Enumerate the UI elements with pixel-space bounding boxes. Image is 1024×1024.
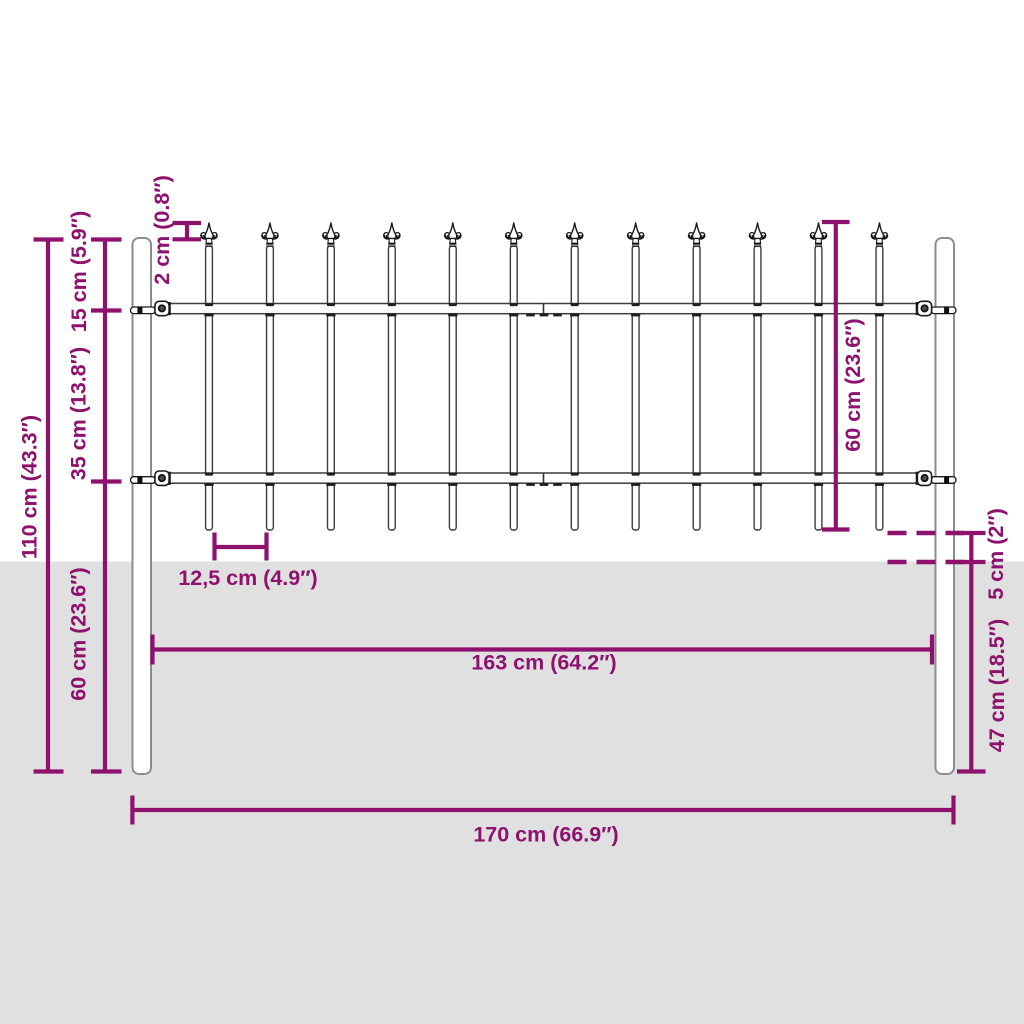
svg-text:5 cm (2″): 5 cm (2″) bbox=[984, 508, 1008, 600]
svg-text:15 cm (5.9″): 15 cm (5.9″) bbox=[67, 211, 91, 332]
svg-text:60 cm (23.6″): 60 cm (23.6″) bbox=[841, 318, 865, 451]
svg-text:170 cm (66.9″): 170 cm (66.9″) bbox=[473, 823, 618, 847]
svg-text:60 cm (23.6″): 60 cm (23.6″) bbox=[67, 567, 91, 700]
svg-text:12,5 cm (4.9″): 12,5 cm (4.9″) bbox=[178, 566, 317, 590]
svg-text:2 cm (0.8″): 2 cm (0.8″) bbox=[150, 175, 174, 284]
svg-text:47 cm (18.5″): 47 cm (18.5″) bbox=[985, 619, 1009, 752]
svg-text:110 cm (43.3″): 110 cm (43.3″) bbox=[18, 415, 42, 559]
svg-text:35 cm (13.8″): 35 cm (13.8″) bbox=[67, 347, 91, 480]
svg-text:163 cm (64.2″): 163 cm (64.2″) bbox=[471, 651, 616, 675]
